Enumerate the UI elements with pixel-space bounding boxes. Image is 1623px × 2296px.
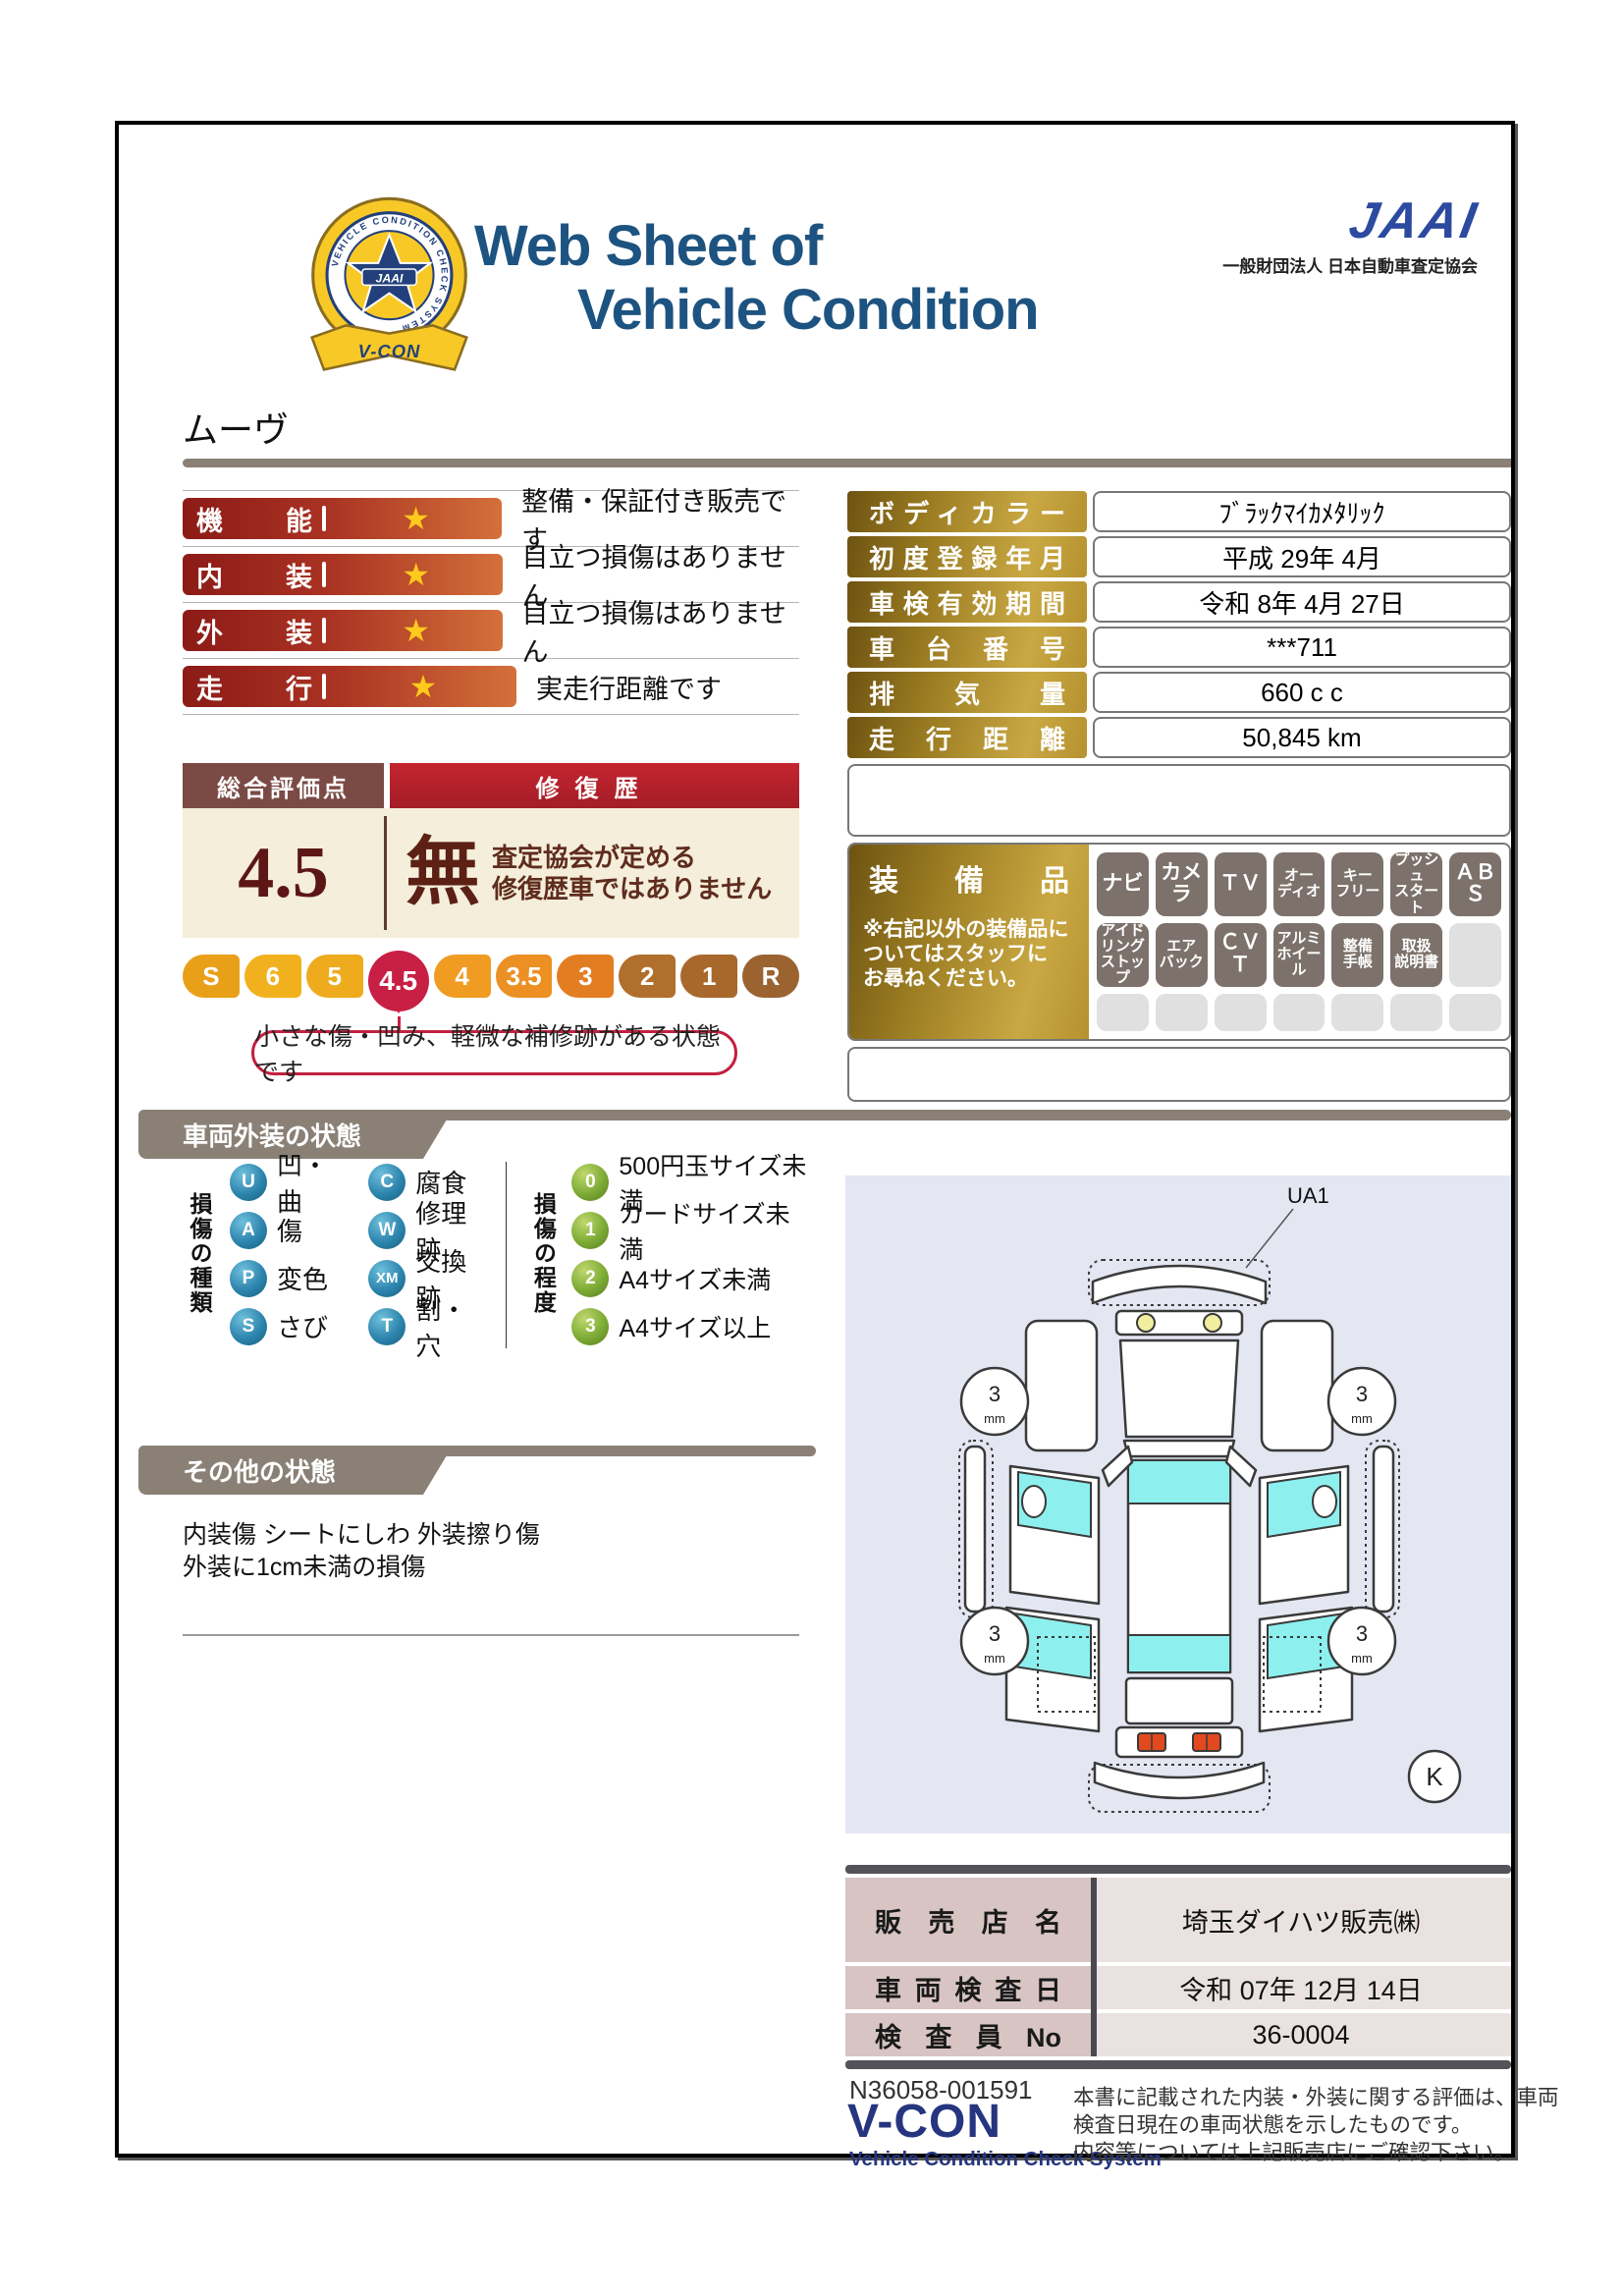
vcon-wordmark: V-CON <box>847 2099 1001 2146</box>
rating-list: 機能 ★ 整備・保証付き販売です 内装 ★ 目立つ損傷はありません 外装 ★ 目… <box>183 490 799 715</box>
spec-label: 初度登録年月 <box>847 536 1087 577</box>
key-marker: K <box>1409 1751 1460 1802</box>
rating-row-exterior: 外装 ★ 目立つ損傷はありません <box>183 603 799 658</box>
hood-panel <box>1120 1340 1238 1437</box>
key-label: K <box>1426 1762 1443 1791</box>
table-bottom-bar <box>845 2060 1511 2069</box>
part-code-pointer <box>1246 1209 1293 1268</box>
spec-value: 平成 29年 4月 <box>1093 536 1511 577</box>
star-icon: ★ <box>344 668 503 705</box>
rear-bumper <box>1095 1763 1264 1798</box>
spec-value: ***711 <box>1093 627 1511 668</box>
scale-segment: 5 <box>306 955 363 998</box>
overall-evaluation: 総合評価点 修復歴 4.5 無 査定協会が定める 修復歴車ではありません <box>183 763 799 938</box>
repair-history-header: 修復歴 <box>390 763 799 808</box>
equipment-badge: 取扱 説明書 <box>1390 923 1442 987</box>
score-scale: S 6 5 4.5 4 3.5 3 2 1 R <box>183 955 799 998</box>
table-top-bar <box>845 1865 1511 1874</box>
footer-note: 本書に記載された内装・外装に関する評価は、車両 検査日現在の車両状態を示したもの… <box>1073 2085 1623 2167</box>
damage-type-code: S <box>230 1308 267 1345</box>
damage-type-code: C <box>368 1164 406 1201</box>
banner-title: その他の状態 <box>138 1446 453 1495</box>
tire-depth-unit: mm <box>984 1651 1005 1666</box>
other-section-divider <box>183 1634 799 1636</box>
tire-depth-unit: mm <box>1351 1651 1373 1666</box>
page-title-line2: Vehicle Condition <box>577 279 1039 343</box>
repair-history-note: 査定協会が定める 修復歴車ではありません <box>492 842 772 905</box>
dealer-rows: 販売店名 埼玉ダイハツ販売㈱ 車両検査日 令和 07年 12月 14日 検査員N… <box>845 1878 1511 2056</box>
tailgate-panel <box>1126 1678 1232 1723</box>
spec-label: ボディカラー <box>847 491 1087 532</box>
equipment-badge: カメラ <box>1156 852 1208 916</box>
equipment-badge: 整備 手帳 <box>1331 923 1383 987</box>
legend-divider <box>506 1162 508 1348</box>
dealer-value: 令和 07年 12月 14日 <box>1091 1966 1511 2009</box>
damage-type-label: 変色 <box>277 1260 328 1296</box>
overall-score: 4.5 <box>183 832 384 915</box>
rating-label: 機能 <box>196 500 312 538</box>
damage-grade: 2A4サイズ未満 <box>571 1254 811 1302</box>
damage-type-label: さび <box>277 1308 328 1344</box>
damage-type-title: 損傷の種類 <box>183 1158 216 1349</box>
tire-rear-left: 3 mm <box>961 1608 1028 1674</box>
jaai-subtitle: 一般財団法人 日本自動車査定協会 <box>1222 252 1478 277</box>
tire-front-right: 3 mm <box>1328 1368 1395 1435</box>
equipment-badge-empty <box>1449 994 1501 1032</box>
page-title-line1: Web Sheet of <box>474 215 1039 279</box>
damage-type-code: A <box>230 1212 267 1249</box>
jaai-logo: JAAI 一般財団法人 日本自動車査定協会 <box>1222 191 1478 277</box>
star-icon: ★ <box>344 612 489 649</box>
spec-label: 車台番号 <box>847 627 1087 668</box>
rating-bar-divider <box>322 562 326 587</box>
equipment-badge: キー フリー <box>1331 852 1383 916</box>
overall-score-header: 総合評価点 <box>183 763 384 808</box>
part-code-label: UA1 <box>1287 1183 1329 1208</box>
rating-bar: 内装 ★ <box>183 554 503 595</box>
cowl-panel <box>1124 1441 1234 1456</box>
star-icon: ★ <box>344 556 489 593</box>
equipment-header: 装備品 ※右記以外の装備品に ついてはスタッフに お尋ねください。 <box>849 845 1089 1039</box>
spec-label: 車検有効期間 <box>847 581 1087 623</box>
equipment-badge-empty <box>1273 994 1325 1032</box>
dealer-label: 販売店名 <box>845 1878 1091 1962</box>
tire-depth-value: 3 <box>989 1621 1001 1646</box>
equipment-badge-empty <box>1390 994 1442 1032</box>
damage-grade-label: A4サイズ未満 <box>619 1261 771 1296</box>
damage-grade-code: 3 <box>571 1308 609 1345</box>
dealer-row-inspection-date: 車両検査日 令和 07年 12月 14日 <box>845 1966 1511 2009</box>
vcon-emblem-icon: VEHICLE CONDITION CHECK SYSTEM JAAI V-CO… <box>284 186 495 394</box>
equipment-badge: アルミ ホイール <box>1273 923 1325 987</box>
exterior-section-banner: 車両外装の状態 <box>138 1110 1511 1159</box>
taillight-panel <box>1116 1727 1242 1757</box>
equipment-badge: プッシュ スタート <box>1390 852 1442 916</box>
spec-value: 660 c c <box>1093 672 1511 713</box>
scale-segment: 6 <box>244 955 301 998</box>
rating-bar: 外装 ★ <box>183 610 503 651</box>
equipment-title: 装備品 <box>863 854 1075 902</box>
equipment-badge: ＡＢＳ <box>1449 852 1501 916</box>
damage-type-code: W <box>368 1212 406 1249</box>
scale-segment: 4 <box>434 955 491 998</box>
page-title: Web Sheet of Vehicle Condition <box>474 215 1039 343</box>
emblem-star-label: JAAI <box>376 271 405 285</box>
scale-segment-selected: 4.5 <box>368 951 429 1011</box>
tire-depth-value: 3 <box>1356 1382 1368 1406</box>
damage-type: P変色 <box>230 1254 343 1302</box>
front-bumper <box>1093 1266 1266 1303</box>
equipment-extra-box <box>847 1047 1511 1102</box>
spec-row-mileage: 走行距離 50,845 km <box>847 717 1511 758</box>
overall-header: 総合評価点 修復歴 <box>183 763 799 808</box>
scale-segment: 3.5 <box>496 955 553 998</box>
spec-row-chassis-number: 車台番号 ***711 <box>847 627 1511 668</box>
condition-sheet: VEHICLE CONDITION CHECK SYSTEM JAAI V-CO… <box>115 121 1515 2158</box>
spec-value: 50,845 km <box>1093 717 1511 758</box>
damage-type-label: 傷 <box>277 1212 302 1248</box>
damage-type: T割・穴 <box>368 1302 481 1350</box>
dealer-label: 検査員No <box>845 2013 1091 2056</box>
spec-row-displacement: 排気量 660 c c <box>847 672 1511 713</box>
spec-value: ﾌﾞﾗｯｸﾏｲｶﾒﾀﾘｯｸ <box>1093 491 1511 532</box>
other-section-banner: その他の状態 <box>138 1446 816 1495</box>
rating-bar: 走行 ★ <box>183 666 516 707</box>
rating-label: 走行 <box>196 668 312 706</box>
damage-grade-list: 0500円玉サイズ未満 1カードサイズ未満 2A4サイズ未満 3A4サイズ以上 <box>571 1158 811 1350</box>
equipment-note: ※右記以外の装備品に ついてはスタッフに お尋ねください。 <box>863 917 1075 992</box>
damage-type-code: XM <box>368 1260 406 1297</box>
other-condition-text: 内装傷 シートにしわ 外装擦り傷 外装に1cm未満の損傷 <box>183 1519 540 1583</box>
equipment-badge-empty <box>1449 923 1501 987</box>
repair-history-value: 無 <box>406 836 480 910</box>
tire-depth-unit: mm <box>984 1411 1005 1426</box>
spec-label: 排気量 <box>847 672 1087 713</box>
scale-segment: S <box>183 955 240 998</box>
dealer-value: 36-0004 <box>1091 2013 1511 2056</box>
tire-depth-value: 3 <box>1356 1621 1368 1646</box>
emblem-ribbon-label: V-CON <box>358 341 421 361</box>
spec-value: 令和 8年 4月 27日 <box>1093 581 1511 623</box>
rating-row-mileage: 走行 ★ 実走行距離です <box>183 659 799 714</box>
star-icon: ★ <box>344 500 488 537</box>
headlight-right <box>1204 1314 1221 1332</box>
equipment-badge: ＴＶ <box>1215 852 1267 916</box>
dealer-row-inspector-no: 検査員No 36-0004 <box>845 2013 1511 2056</box>
scale-segment: 1 <box>680 955 737 998</box>
windshield <box>1128 1460 1230 1503</box>
damage-type-code: U <box>230 1164 267 1201</box>
equipment-grid: ナビ カメラ ＴＶ オー ディオ キー フリー プッシュ スタート ＡＢＳ アイ… <box>1089 845 1509 1039</box>
damage-type-grid: U凹・曲 C腐食 A傷 W修理跡 P変色 XM交換跡 Sさび T割・穴 <box>230 1158 482 1350</box>
jaai-wordmark-icon: JAAI <box>1344 191 1483 250</box>
tire-rear-right: 3 mm <box>1328 1608 1395 1674</box>
rating-bar-divider <box>322 506 326 531</box>
equipment-panel: 装備品 ※右記以外の装備品に ついてはスタッフに お尋ねください。 ナビ カメラ… <box>847 843 1511 1041</box>
spec-extra-box <box>847 764 1511 837</box>
equipment-badge-empty <box>1156 994 1208 1032</box>
overall-body-divider <box>384 816 387 930</box>
score-callout: 小さな傷・凹み、軽微な補修跡がある状態です <box>251 1030 737 1075</box>
damage-grade: 1カードサイズ未満 <box>571 1206 811 1254</box>
rating-comment: 目立つ損傷はありません <box>522 592 799 669</box>
spec-label: 走行距離 <box>847 717 1087 758</box>
damage-type-code: P <box>230 1260 267 1297</box>
damage-type-label: 割・穴 <box>415 1290 481 1363</box>
scale-segment: R <box>742 955 799 998</box>
rating-bar: 機能 ★ <box>183 498 502 539</box>
damage-grade-code: 2 <box>571 1260 609 1297</box>
rating-bar-divider <box>322 674 326 699</box>
dealer-row-shop: 販売店名 埼玉ダイハツ販売㈱ <box>845 1878 1511 1962</box>
rating-comment: 実走行距離です <box>536 668 722 706</box>
headlight-left <box>1137 1314 1155 1332</box>
spec-row-inspection-valid: 車検有効期間 令和 8年 4月 27日 <box>847 581 1511 623</box>
equipment-badge: オー ディオ <box>1273 852 1325 916</box>
overall-body: 4.5 無 査定協会が定める 修復歴車ではありません <box>183 808 799 938</box>
damage-grade-label: A4サイズ以上 <box>619 1309 771 1344</box>
damage-type: U凹・曲 <box>230 1158 343 1206</box>
damage-legend: 損傷の種類 U凹・曲 C腐食 A傷 W修理跡 P変色 XM交換跡 Sさび T割・… <box>183 1158 811 1350</box>
equipment-badge: アイド リング ストップ <box>1097 923 1149 987</box>
vehicle-name: ムーヴ <box>183 402 289 453</box>
equipment-badge-empty <box>1331 994 1383 1032</box>
rating-label: 外装 <box>196 612 312 650</box>
spec-row-bodycolor: ボディカラー ﾌﾞﾗｯｸﾏｲｶﾒﾀﾘｯｸ <box>847 491 1511 532</box>
dealer-value: 埼玉ダイハツ販売㈱ <box>1091 1878 1511 1962</box>
damage-grade-code: 1 <box>571 1212 609 1249</box>
dealer-column-divider <box>1091 1878 1097 2056</box>
vehicle-damage-diagram: .pnl{fill:#fff;stroke:#3a3a3a;stroke-wid… <box>845 1175 1511 1833</box>
damage-grade: 3A4サイズ以上 <box>571 1302 811 1350</box>
equipment-badge: ナビ <box>1097 852 1149 916</box>
equipment-badge-empty <box>1097 994 1149 1032</box>
damage-type-code: T <box>368 1308 406 1345</box>
equipment-badge: エア バック <box>1156 923 1208 987</box>
spec-row-first-registration: 初度登録年月 平成 29年 4月 <box>847 536 1511 577</box>
header-divider <box>183 459 1511 467</box>
damage-grade-title: 損傷の程度 <box>526 1158 560 1349</box>
scale-segment: 2 <box>619 955 676 998</box>
damage-type: A傷 <box>230 1206 343 1254</box>
headlight-panel <box>1116 1311 1242 1335</box>
equipment-badge-empty <box>1215 994 1267 1032</box>
tire-depth-value: 3 <box>989 1382 1001 1406</box>
rating-label: 内装 <box>196 556 312 594</box>
damage-type: Sさび <box>230 1302 343 1350</box>
rating-separator <box>183 714 799 715</box>
equipment-badge: ＣＶＴ <box>1215 923 1267 987</box>
scale-segment: 3 <box>557 955 614 998</box>
dealer-label: 車両検査日 <box>845 1966 1091 2009</box>
rear-window <box>1128 1635 1230 1672</box>
rating-bar-divider <box>322 618 326 643</box>
damage-grade-code: 0 <box>571 1164 609 1201</box>
tire-front-left: 3 mm <box>961 1368 1028 1435</box>
dealer-table: 販売店名 埼玉ダイハツ販売㈱ 車両検査日 令和 07年 12月 14日 検査員N… <box>845 1865 1511 2069</box>
tire-depth-unit: mm <box>1351 1411 1373 1426</box>
